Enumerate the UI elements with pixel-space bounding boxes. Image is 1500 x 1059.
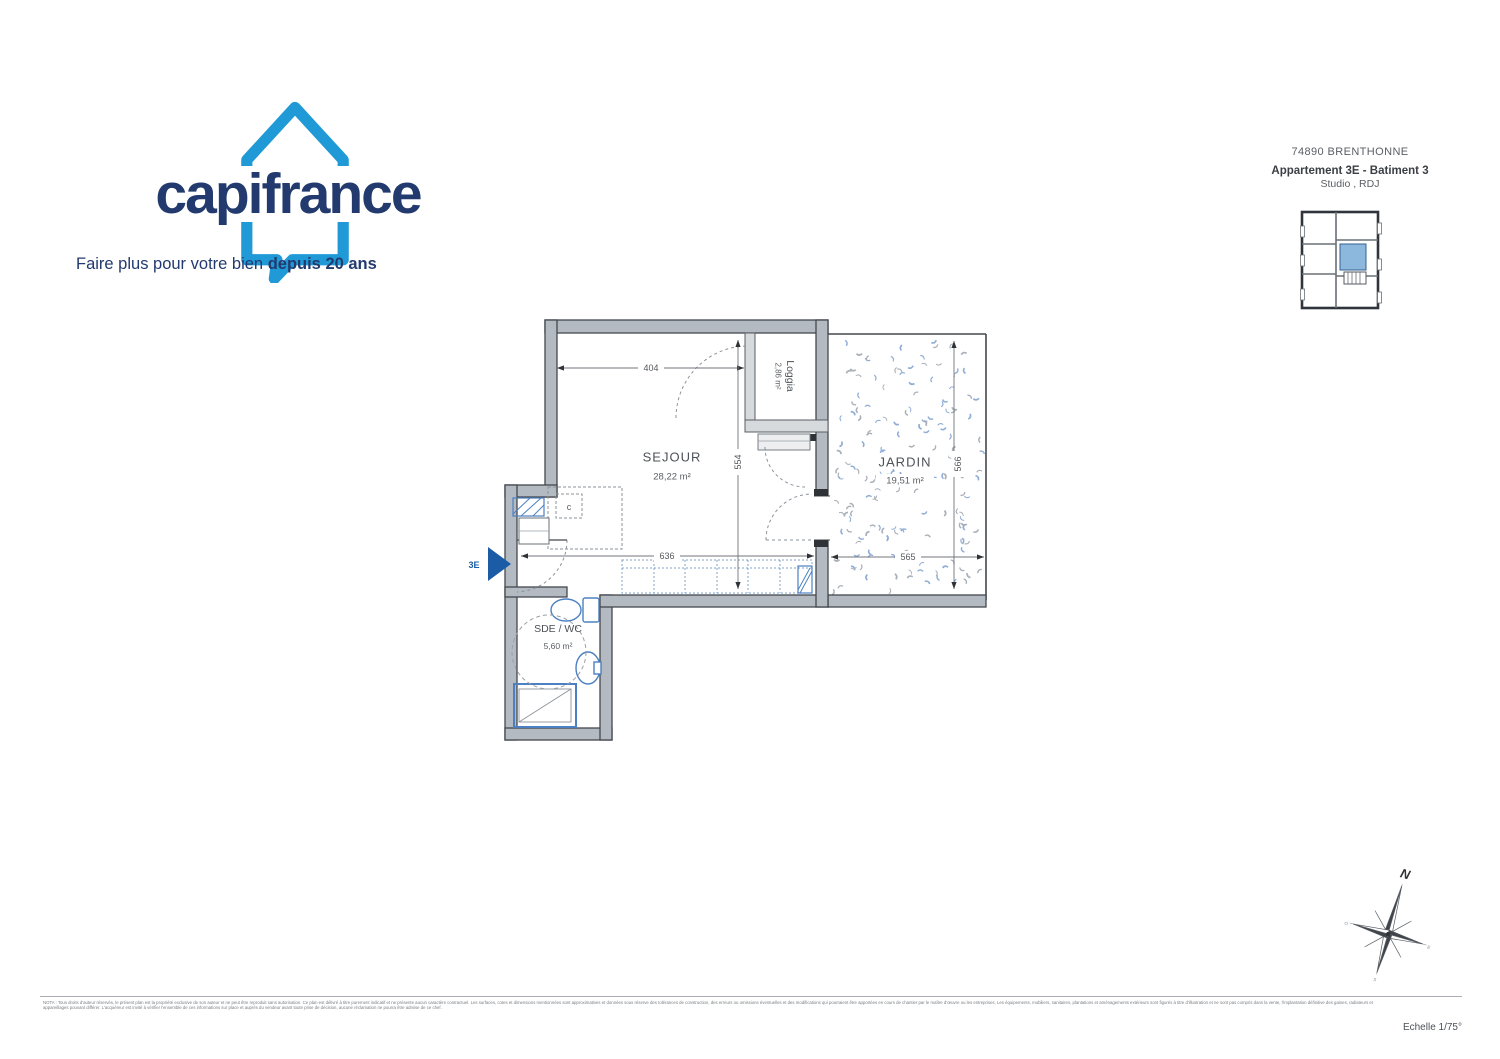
tagline-bold: depuis 20 ans [268,255,377,273]
logo-wordmark: capifrance [155,166,420,223]
building-key-plan [1300,210,1382,312]
bathroom-fixtures [514,598,601,727]
floor-plan: c 3E [440,300,1020,770]
sejour-area: 28,22 m² [653,472,691,483]
compass-west-label: O [1344,921,1349,927]
scale-label: Echelle 1/75° [1330,1022,1462,1033]
keyplan-highlighted-unit [1340,244,1366,270]
loggia-bench [758,434,810,450]
dimension-label: 566 [953,456,963,471]
sde-area: 5,60 m² [544,641,573,651]
type-line: Studio , RDJ [1190,178,1500,190]
compass-rose-icon: N E S O [1338,862,1438,990]
sde-label: SDE / WC [534,623,582,635]
loggia-area: 2,86 m² [774,362,783,389]
property-line: Appartement 3E - Batiment 3 [1190,165,1500,177]
brand-tagline: Faire plus pour votre bien depuis 20 ans [76,255,377,274]
compass-east-label: E [1427,944,1431,950]
dimension-label: 554 [733,454,743,469]
tagline-regular: Faire plus pour votre bien [76,255,268,273]
kitchen-units [622,560,812,593]
footer-divider [40,996,1462,997]
jardin-door-opening [814,496,830,540]
jardin-area: 19,51 m² [886,476,924,487]
closet-label: c [567,502,572,512]
dimension-label: 636 [659,551,674,561]
loggia-label: Loggia [784,360,796,392]
compass-north-label: N [1399,865,1413,882]
compass-south-label: S [1373,977,1377,983]
dimension-label: 404 [643,363,658,373]
sejour-label: SEJOUR [643,450,702,465]
jardin-label: JARDIN [879,455,932,470]
city-line: 74890 BRENTHONNE [1190,146,1500,158]
capifrance-logo: capifrance [60,40,480,290]
legal-disclaimer: NOTA : Tous droits d'auteur réservés, le… [43,1000,1373,1011]
toilet-icon [551,599,581,621]
duct-kitchen [798,566,812,593]
dimension-label: 565 [900,552,915,562]
property-header: 74890 BRENTHONNE Appartement 3E - Batime… [1190,146,1500,190]
unit-label: 3E [468,560,479,570]
duct-entry [513,498,544,516]
